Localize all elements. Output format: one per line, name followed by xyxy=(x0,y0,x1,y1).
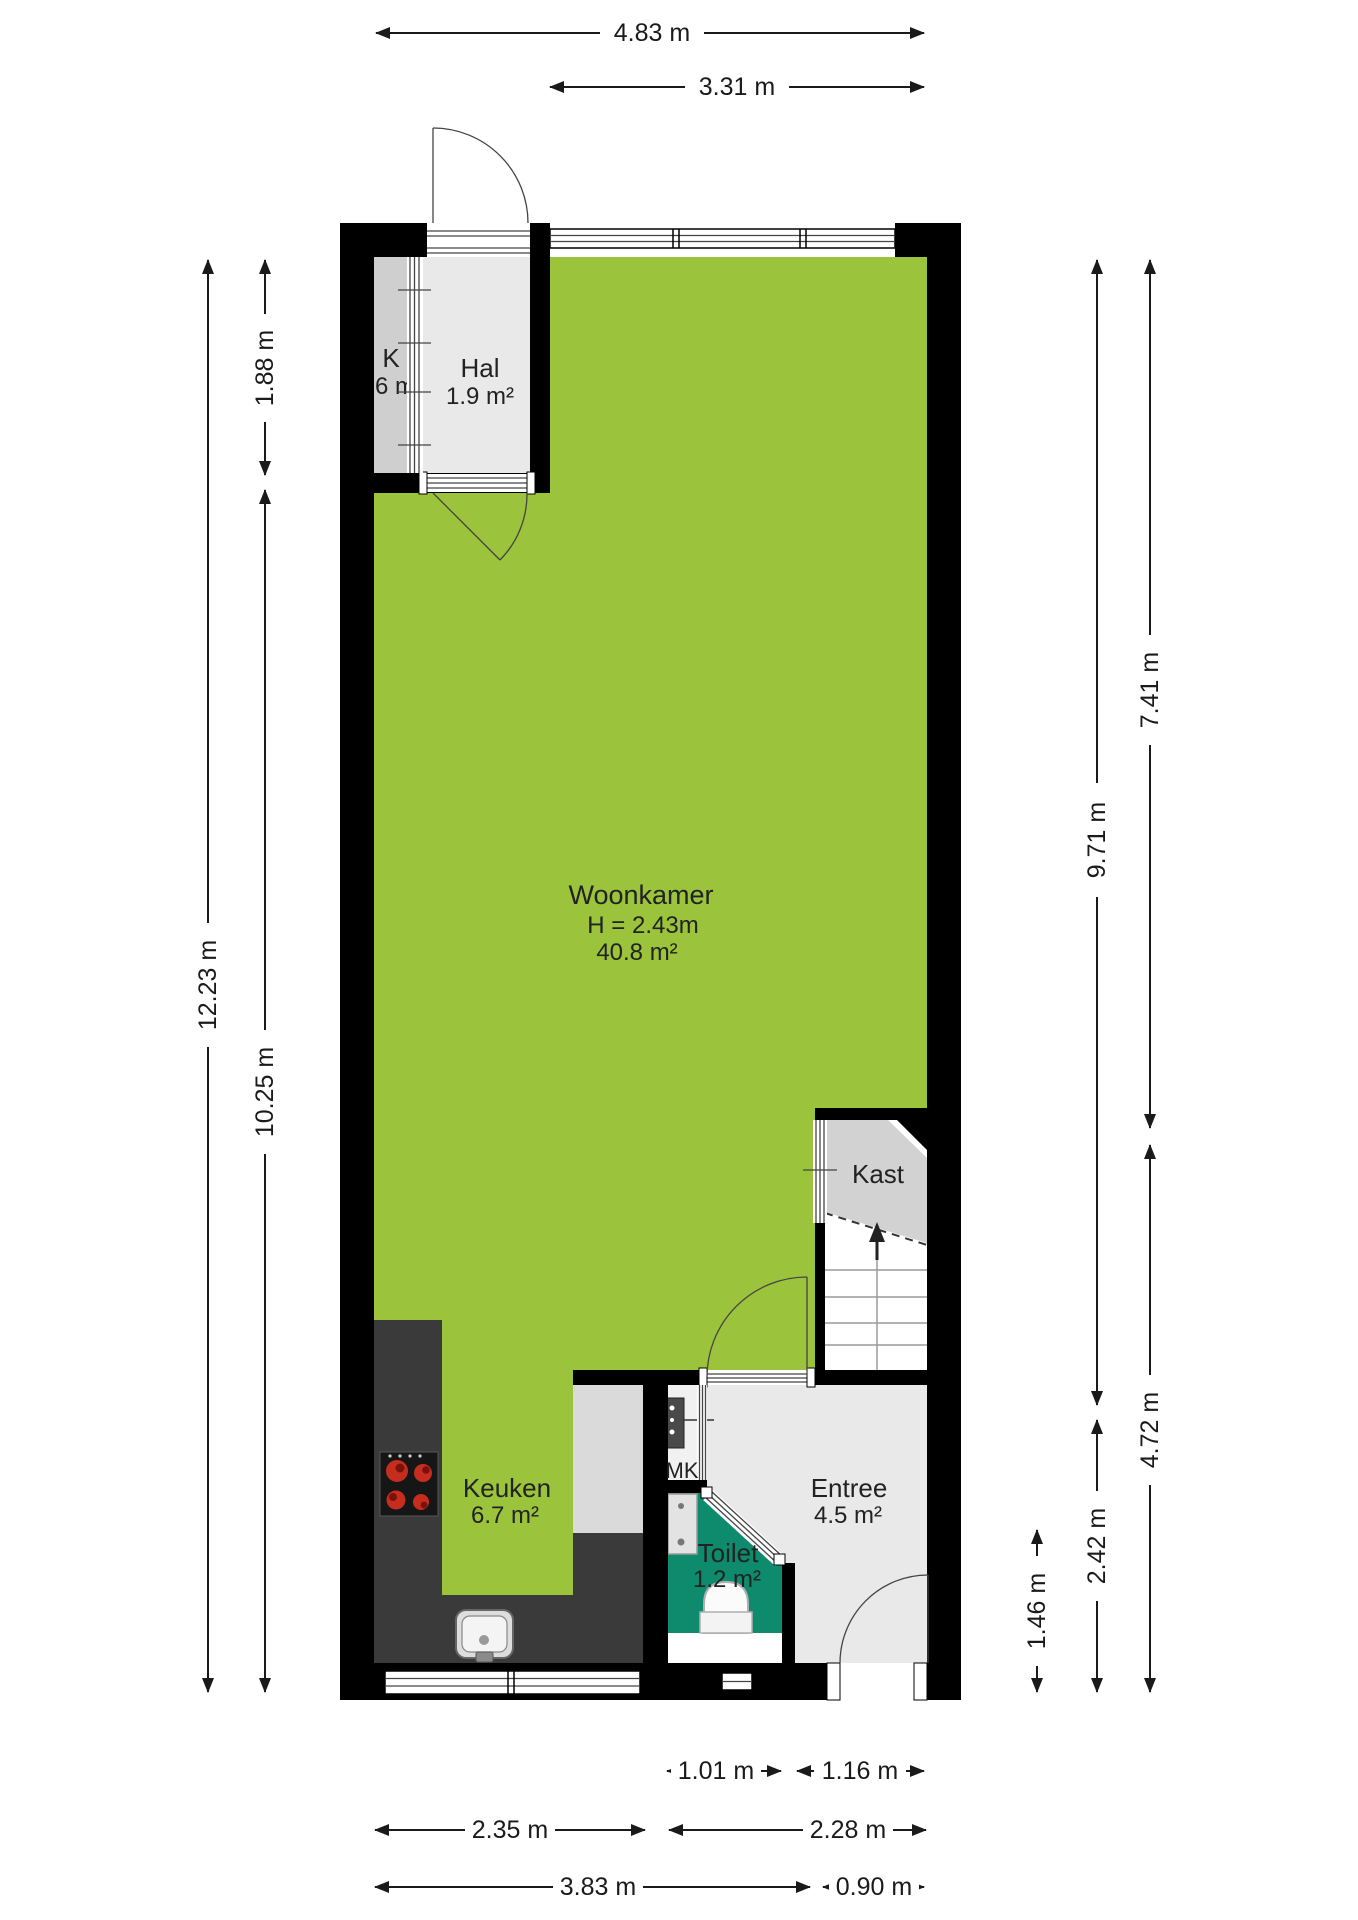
top-entrance-door xyxy=(427,128,530,257)
k-room-name: K xyxy=(382,343,400,373)
dim-right-inner-upper: 9.71 m xyxy=(1083,802,1111,878)
dim-bottom-keuken: 2.35 m xyxy=(472,1816,548,1844)
dim-right-outer-lower: 4.72 m xyxy=(1136,1392,1164,1468)
wall-toilet-left xyxy=(643,1493,668,1663)
wall-hal-right xyxy=(530,223,550,493)
keuken-name: Keuken xyxy=(463,1473,551,1503)
toilet-lower-strip xyxy=(668,1633,782,1663)
wall-top-left xyxy=(340,223,427,257)
wall-toilet-right xyxy=(782,1563,795,1663)
dim-right-outer-upper: 7.41 m xyxy=(1136,652,1164,728)
dim-left-total: 12.23 m xyxy=(194,940,222,1030)
dim-top-partial: 3.31 m xyxy=(699,73,775,101)
kitchen-counter-unit xyxy=(573,1533,643,1595)
dim-bottom-door: 0.90 m xyxy=(836,1873,912,1901)
mk-door xyxy=(697,1385,707,1480)
wall-right xyxy=(927,223,961,1700)
woonkamer-area: 40.8 m² xyxy=(596,939,677,966)
hal-area: 1.9 m² xyxy=(446,383,514,410)
mk-name: MK xyxy=(666,1458,699,1483)
top-window xyxy=(550,229,895,248)
wall-left xyxy=(340,223,374,1700)
dim-bottom-left-total: 3.83 m xyxy=(560,1873,636,1901)
sink-icon xyxy=(456,1610,513,1662)
entree-name: Entree xyxy=(811,1473,888,1503)
dim-right-toilet: 1.46 m xyxy=(1023,1573,1051,1649)
dim-bottom-entree: 1.16 m xyxy=(822,1757,898,1785)
keuken-area: 6.7 m² xyxy=(471,1502,539,1529)
woonkamer-name: Woonkamer xyxy=(568,880,713,910)
dim-left-lower: 10.25 m xyxy=(251,1047,279,1137)
woonkamer-height-note: H = 2.43m xyxy=(587,912,698,939)
wall-top-right xyxy=(895,223,961,257)
dim-bottom-toilet-entree: 2.28 m xyxy=(810,1816,886,1844)
entree-area: 4.5 m² xyxy=(814,1502,882,1529)
wall-mk-left xyxy=(643,1373,668,1493)
kast-name: Kast xyxy=(852,1159,905,1189)
toilet-area: 1.2 m² xyxy=(693,1566,761,1593)
dim-right-inner-lower: 2.42 m xyxy=(1083,1508,1111,1584)
keuken-window xyxy=(385,1671,640,1694)
kitchen-tall-unit xyxy=(573,1385,643,1533)
toilet-name: Toilet xyxy=(698,1538,759,1568)
toilet-window xyxy=(722,1673,752,1690)
dim-top-total: 4.83 m xyxy=(614,19,690,47)
floor-plan-svg: K 0.6 m² xyxy=(0,0,1358,1920)
toilet-basin-icon xyxy=(668,1494,697,1554)
wall-stairs-left xyxy=(815,1223,825,1370)
stove-icon xyxy=(380,1452,438,1516)
hal-name: Hal xyxy=(460,353,499,383)
dim-bottom-toilet: 1.01 m xyxy=(678,1757,754,1785)
dim-left-hal: 1.88 m xyxy=(251,330,279,406)
